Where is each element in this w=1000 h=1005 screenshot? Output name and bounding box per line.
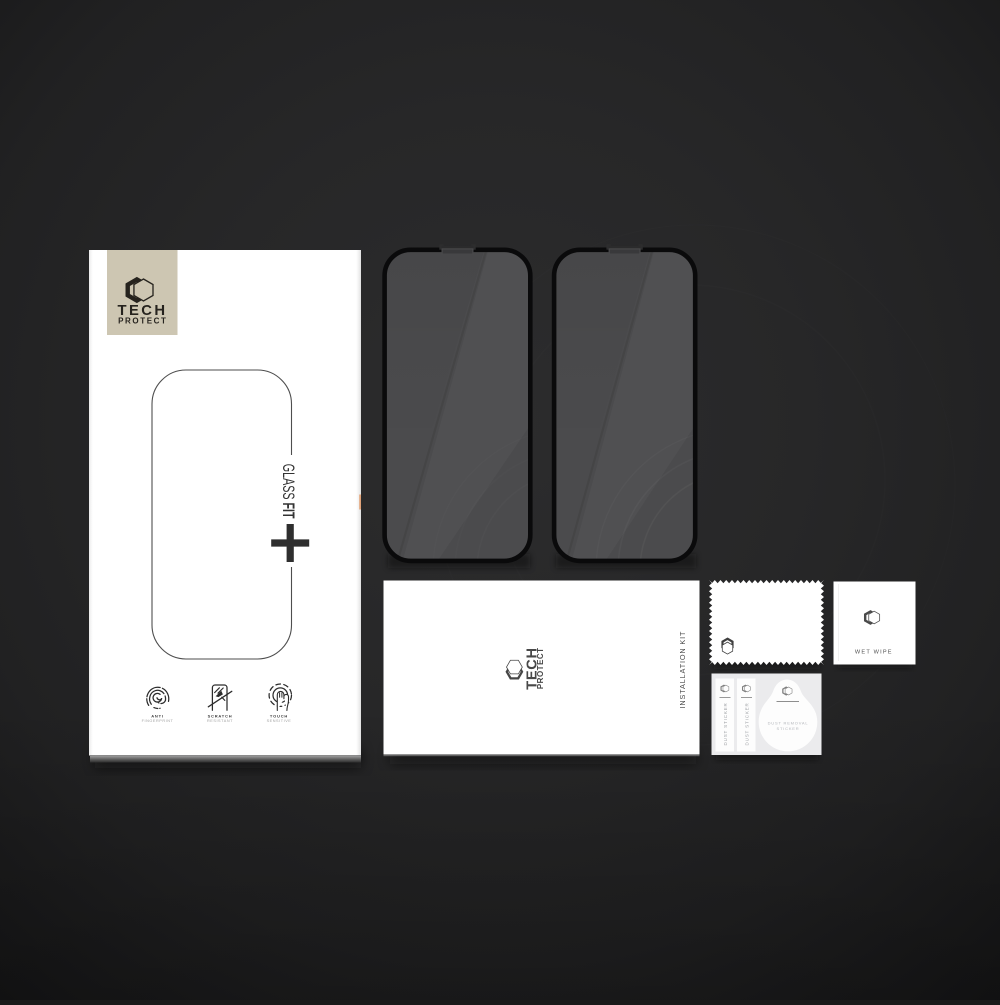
svg-text:TOUCH: TOUCH: [270, 713, 288, 718]
svg-text:SCRATCH: SCRATCH: [208, 713, 233, 718]
svg-text:RESISTANT: RESISTANT: [207, 719, 233, 723]
svg-text:ANTI: ANTI: [151, 713, 164, 718]
svg-text:SENSITIVE: SENSITIVE: [267, 719, 292, 723]
svg-text:PROTECT: PROTECT: [118, 316, 167, 325]
svg-text:GLASS FIT: GLASS FIT: [278, 464, 297, 519]
svg-text:WET WIPE: WET WIPE: [855, 649, 893, 655]
svg-text:FINGERPRINT: FINGERPRINT: [142, 719, 174, 723]
svg-text:PROTECT: PROTECT: [536, 647, 545, 689]
svg-text:DUST STICKER: DUST STICKER: [745, 702, 750, 745]
svg-text:DUST STICKER: DUST STICKER: [723, 702, 728, 745]
svg-text:DUST REMOVAL: DUST REMOVAL: [768, 721, 809, 726]
svg-text:INSTALLATION KIT: INSTALLATION KIT: [678, 631, 687, 709]
svg-text:STICKER: STICKER: [777, 726, 800, 731]
